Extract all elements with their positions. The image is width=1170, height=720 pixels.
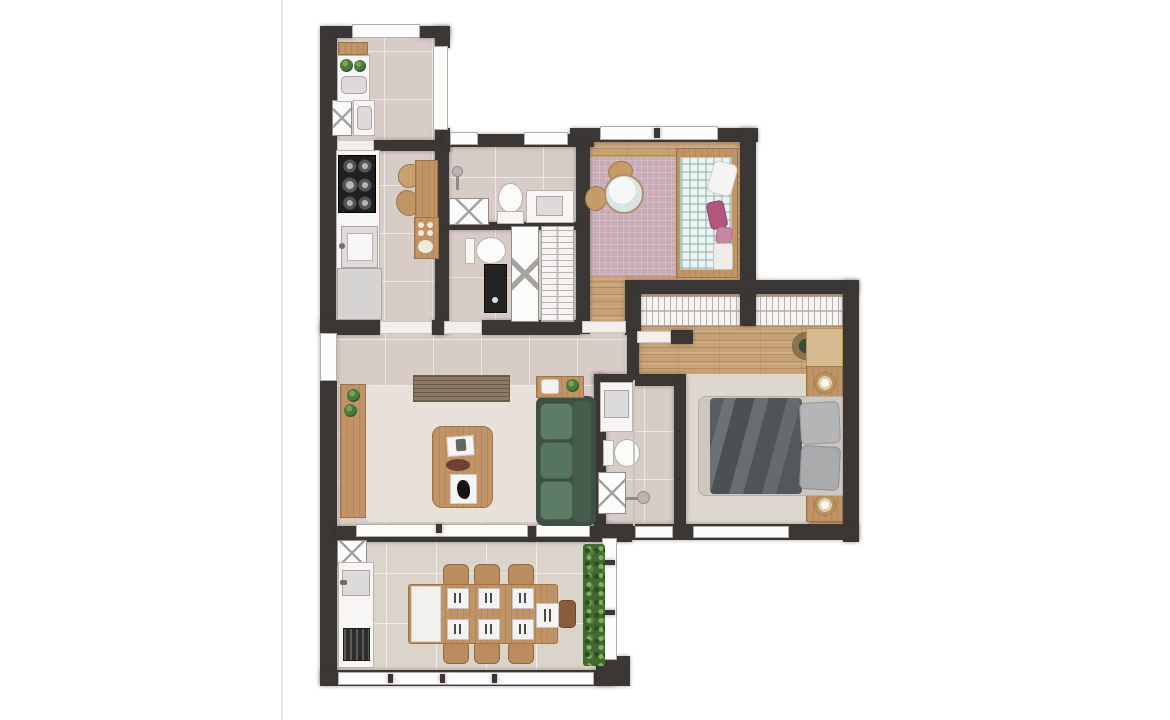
dining-chair-end	[558, 600, 576, 628]
service-shelf	[338, 42, 368, 55]
door-kitchen-hall	[380, 321, 432, 334]
ensuite-shower-head	[637, 491, 650, 504]
door-bathroom	[444, 321, 482, 334]
hall-closet	[541, 226, 574, 322]
bathroom2-toilet-tank	[465, 238, 475, 264]
window-mullion-1	[388, 674, 393, 683]
wall-hall-master	[671, 330, 693, 344]
window-service-north	[352, 24, 420, 38]
window-hall-west	[320, 333, 337, 381]
kitchen-fridge	[337, 268, 382, 320]
living-sofa-cushion-1	[540, 403, 573, 440]
window-mullion-6	[654, 128, 660, 138]
wall-bath-bedroom1	[576, 134, 590, 334]
kitchen-sink-basin	[347, 233, 373, 261]
master-pillow-2	[799, 445, 841, 491]
living-dog-image	[457, 480, 470, 499]
service-washer-drum	[357, 106, 372, 130]
living-plant-1	[347, 389, 360, 402]
wall-south-kitchen-b	[432, 320, 444, 335]
living-sofa-cushion-2	[540, 442, 573, 479]
bedroom1-bench	[713, 243, 733, 270]
kitchen-cart-bowl-2	[427, 222, 433, 228]
shaft-column	[511, 226, 539, 322]
service-sink	[341, 76, 367, 94]
bedroom1-table-mirror	[604, 174, 644, 214]
master-lamp-1	[814, 372, 836, 394]
ensuite-toilet-tank	[603, 440, 614, 466]
shaft-bathroom1	[449, 198, 489, 225]
door-master	[637, 331, 671, 343]
master-lamp-2	[814, 494, 836, 516]
kitchen-cart-bowl-3	[418, 230, 424, 236]
living-plant-2	[344, 404, 357, 417]
kitchen-stove	[338, 155, 376, 213]
window-mullion-2	[440, 674, 445, 683]
window-mullion-3	[492, 674, 497, 683]
kitchen-cart-plate	[418, 240, 433, 253]
bathroom2-counter-item	[492, 297, 498, 303]
wall-service-north-left	[337, 26, 353, 38]
dining-plate-6	[512, 619, 534, 640]
living-tray	[446, 459, 470, 471]
service-plant-1	[340, 59, 353, 72]
living-sofa-cushion-3	[540, 481, 573, 520]
window-terrace-south	[338, 672, 594, 685]
dining-plate-4	[447, 619, 469, 640]
living-sofa-back	[573, 401, 591, 522]
floor-plan-canvas	[0, 0, 1170, 720]
dining-runner	[411, 586, 441, 642]
window-service-east	[433, 46, 448, 130]
bathroom1-basin	[536, 196, 563, 216]
wall-south-bath	[482, 320, 580, 335]
terrace-faucet	[340, 580, 347, 585]
living-side-table-plant	[566, 379, 579, 392]
window-bath-a	[450, 132, 478, 145]
wall-service-east-top	[435, 26, 450, 48]
dining-chair-4	[443, 641, 469, 664]
kitchen-cart-bowl-1	[418, 222, 424, 228]
wall-master-east	[843, 280, 859, 542]
terrace-planter	[583, 544, 605, 666]
dining-plate-end	[536, 603, 559, 628]
bathroom2-toilet-bowl	[476, 237, 506, 264]
dining-plate-5	[478, 619, 500, 640]
door-bedroom1	[582, 321, 626, 333]
bathroom2-counter	[484, 264, 507, 313]
window-ensuite	[635, 526, 673, 538]
living-side-table-tray	[541, 379, 559, 394]
shaft-ensuite	[598, 472, 626, 514]
dining-plate-1	[447, 588, 469, 609]
wall-bedroom1-master-stub	[625, 280, 641, 335]
bathroom1-shower-head	[452, 166, 463, 177]
window-mullion-7	[436, 524, 442, 533]
living-tv-unit	[413, 375, 510, 402]
living-book-image	[456, 439, 467, 452]
kitchen-cart-bowl-4	[427, 230, 433, 236]
terrace-grill	[343, 628, 370, 661]
dining-plate-3	[512, 588, 534, 609]
kitchen-faucet	[339, 243, 345, 249]
dining-chair-6	[508, 641, 534, 664]
ensuite-glass-screen	[633, 380, 635, 526]
wall-ensuite-east	[674, 386, 686, 526]
ensuite-toilet-bowl	[614, 439, 640, 467]
wall-bedroom1-east	[740, 128, 756, 326]
bathroom1-shower-arm	[456, 177, 459, 190]
dining-chair-5	[474, 641, 500, 664]
window-master	[693, 526, 789, 538]
ensuite-basin	[604, 390, 629, 418]
master-pillow-1	[799, 401, 841, 445]
window-mullion-4	[604, 560, 615, 565]
bathroom1-toilet-bowl	[498, 183, 523, 213]
dining-plate-2	[478, 588, 500, 609]
wall-master-north	[641, 280, 859, 294]
window-terrace-door	[356, 524, 528, 537]
page-divider-line	[281, 0, 283, 720]
bathroom1-toilet-tank	[497, 211, 524, 224]
window-mullion-5	[604, 610, 615, 615]
window-bath-b	[524, 132, 568, 145]
shaft-service	[332, 100, 352, 136]
master-duvet	[710, 398, 802, 494]
service-plant-2	[354, 60, 366, 72]
